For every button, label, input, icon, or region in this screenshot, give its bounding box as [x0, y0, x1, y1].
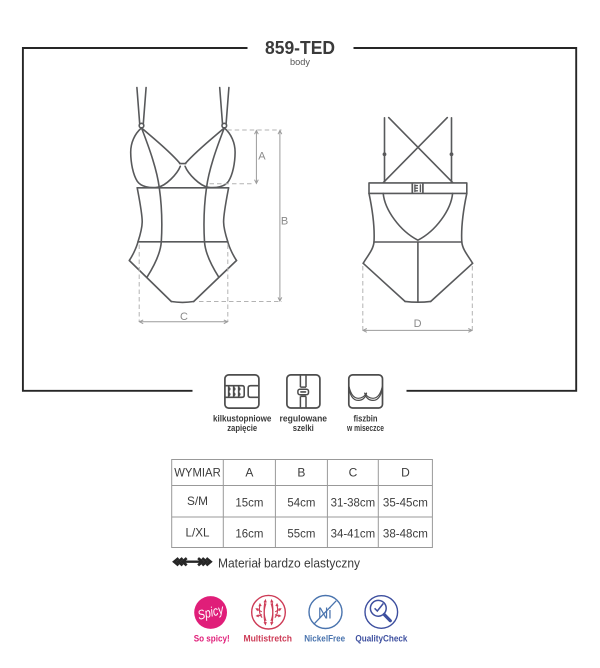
svg-text:QualityCheck: QualityCheck	[355, 634, 408, 645]
svg-text:C: C	[180, 311, 188, 323]
svg-text:Ni: Ni	[318, 605, 332, 622]
svg-text:16cm: 16cm	[235, 527, 263, 541]
svg-text:w miseczce: w miseczce	[346, 423, 384, 434]
svg-text:NickelFree: NickelFree	[304, 634, 345, 645]
svg-text:859-TED: 859-TED	[265, 37, 335, 58]
svg-text:Materiał bardzo elastyczny: Materiał bardzo elastyczny	[218, 556, 360, 571]
svg-text:34-41cm: 34-41cm	[331, 527, 376, 541]
svg-text:zapięcie: zapięcie	[227, 423, 257, 434]
svg-text:So spicy!: So spicy!	[194, 634, 230, 645]
svg-text:54cm: 54cm	[287, 495, 315, 509]
svg-text:szelki: szelki	[293, 423, 314, 434]
svg-text:15cm: 15cm	[235, 495, 263, 509]
svg-text:WYMIAR: WYMIAR	[174, 466, 221, 480]
svg-text:D: D	[401, 466, 410, 480]
svg-text:B: B	[297, 466, 305, 480]
svg-text:C: C	[349, 466, 358, 480]
svg-text:A: A	[258, 151, 266, 163]
svg-text:31-38cm: 31-38cm	[331, 495, 376, 509]
svg-text:38-48cm: 38-48cm	[383, 527, 428, 541]
svg-text:35-45cm: 35-45cm	[383, 495, 428, 509]
svg-text:L/XL: L/XL	[186, 526, 210, 540]
svg-text:55cm: 55cm	[287, 527, 315, 541]
svg-text:Multistretch: Multistretch	[243, 634, 292, 645]
svg-text:A: A	[245, 466, 253, 480]
svg-text:S/M: S/M	[187, 494, 208, 508]
svg-text:body: body	[290, 57, 310, 68]
svg-text:D: D	[414, 318, 422, 330]
svg-text:B: B	[281, 215, 288, 227]
